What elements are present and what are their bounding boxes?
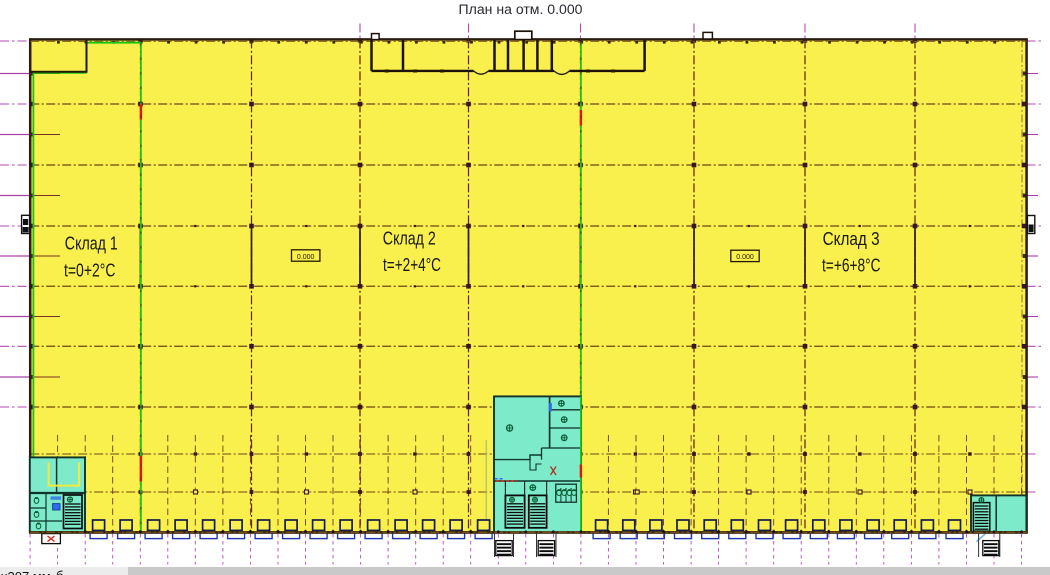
svg-text:t=+6+8°C: t=+6+8°C: [822, 256, 881, 276]
svg-text:Склад 2: Склад 2: [383, 229, 436, 249]
svg-text:План на отм. 0.000: План на отм. 0.000: [459, 2, 583, 17]
svg-text:0.000: 0.000: [297, 254, 315, 261]
svg-text:t=0+2°C: t=0+2°C: [64, 261, 116, 281]
svg-text:х207 мм: х207 мм: [1, 569, 51, 575]
svg-text:Склад 1: Склад 1: [65, 234, 118, 254]
svg-text:б: б: [56, 568, 63, 575]
svg-text:Склад 3: Склад 3: [823, 229, 880, 249]
svg-text:t=+2+4°C: t=+2+4°C: [383, 255, 441, 275]
svg-text:0.000: 0.000: [736, 254, 754, 261]
